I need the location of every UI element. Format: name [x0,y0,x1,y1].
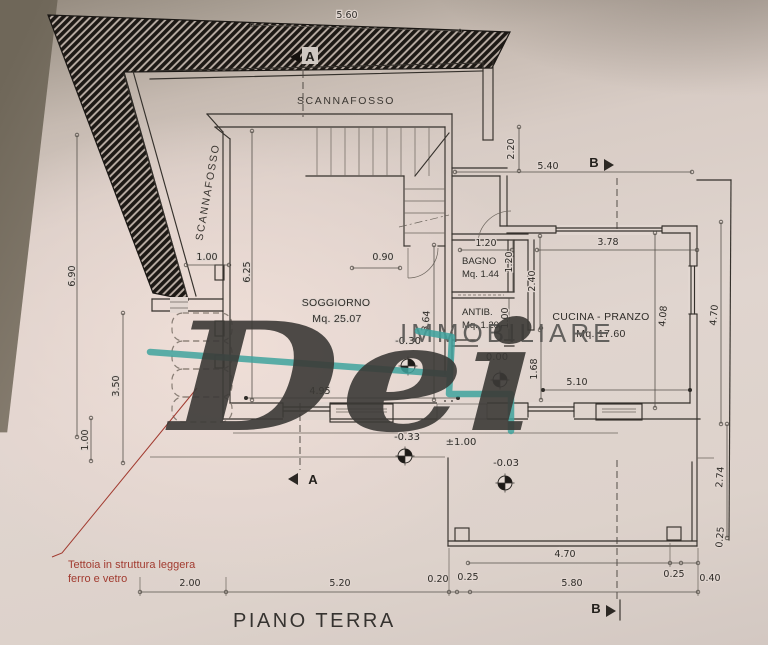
section-a-top-label: A [305,49,315,64]
dim-bottom-s2: 0.25 [457,572,478,583]
dim-cucina-height: 4.08 [657,305,670,327]
dim-terrace-east: 2.74 [714,466,727,488]
section-b-top-arrow [604,159,614,171]
section-b-bottom-arrow [606,605,616,617]
watermark: IMMOBILIARE Dei [150,290,614,466]
dim-bagno-height: 1.20 [504,251,515,272]
dim-tettoia-width: 1.00 [196,252,217,263]
dim-cucina-west: 2.40 [527,270,538,291]
dim-terrace-wall-r: 0.25 [663,569,684,580]
level-symbol [496,474,515,493]
page-title: PIANO TERRA [233,610,396,632]
dim-bottom-left: 2.00 [179,578,200,589]
dim-bottom-s1: 0.20 [427,574,448,585]
annotation-line1: Tettoia in struttura leggera [68,559,196,571]
dim-bagno-width: 1.20 [475,238,496,249]
room-bagno-area: Mq. 1.44 [462,269,499,280]
dim-west-low: 1.00 [80,429,91,450]
dim-top-width: 5.60 [336,10,357,21]
dim-stair-gap: 2.20 [506,138,517,159]
scannafosso-top-label: SCANNAFOSSO [297,95,395,107]
dim-bottom-right: 5.80 [561,578,582,589]
terrace-post [455,528,469,541]
dim-west-height: 6.90 [67,265,78,286]
dim-north-width: 5.40 [537,161,558,172]
annotation-line2: ferro e vetro [68,573,127,585]
dim-cucina-width: 5.10 [566,377,587,388]
section-a-bottom-arrow [288,473,298,485]
dim-terrace-east-wall: 0.25 [714,526,727,548]
dim-east-height: 4.70 [708,304,721,326]
watermark-script: Dei [165,290,540,466]
section-a-bottom-label: A [308,472,318,487]
scannafosso-left-label: SCANNAFOSSO [194,143,223,242]
room-bagno: BAGNO [462,256,496,267]
section-b-bottom-label: B [591,601,600,616]
dim-tettoia-height: 3.50 [111,375,122,396]
floor-plan-drawing: 5.60 2.20 5.40 6.90 1.00 6.25 0.90 1.20 … [0,0,768,645]
dim-stair-door: 0.90 [372,252,393,263]
section-b-top-label: B [589,155,598,170]
dim-terrace-r: 0.40 [699,573,720,584]
dim-bottom-mid: 5.20 [329,578,350,589]
dim-cucina-top: 3.78 [597,237,618,248]
hatched-wall-band [48,15,510,300]
terrace-post [667,527,681,540]
dim-soggiorno-height: 6.25 [242,261,253,282]
dim-terrace-width: 4.70 [554,549,575,560]
